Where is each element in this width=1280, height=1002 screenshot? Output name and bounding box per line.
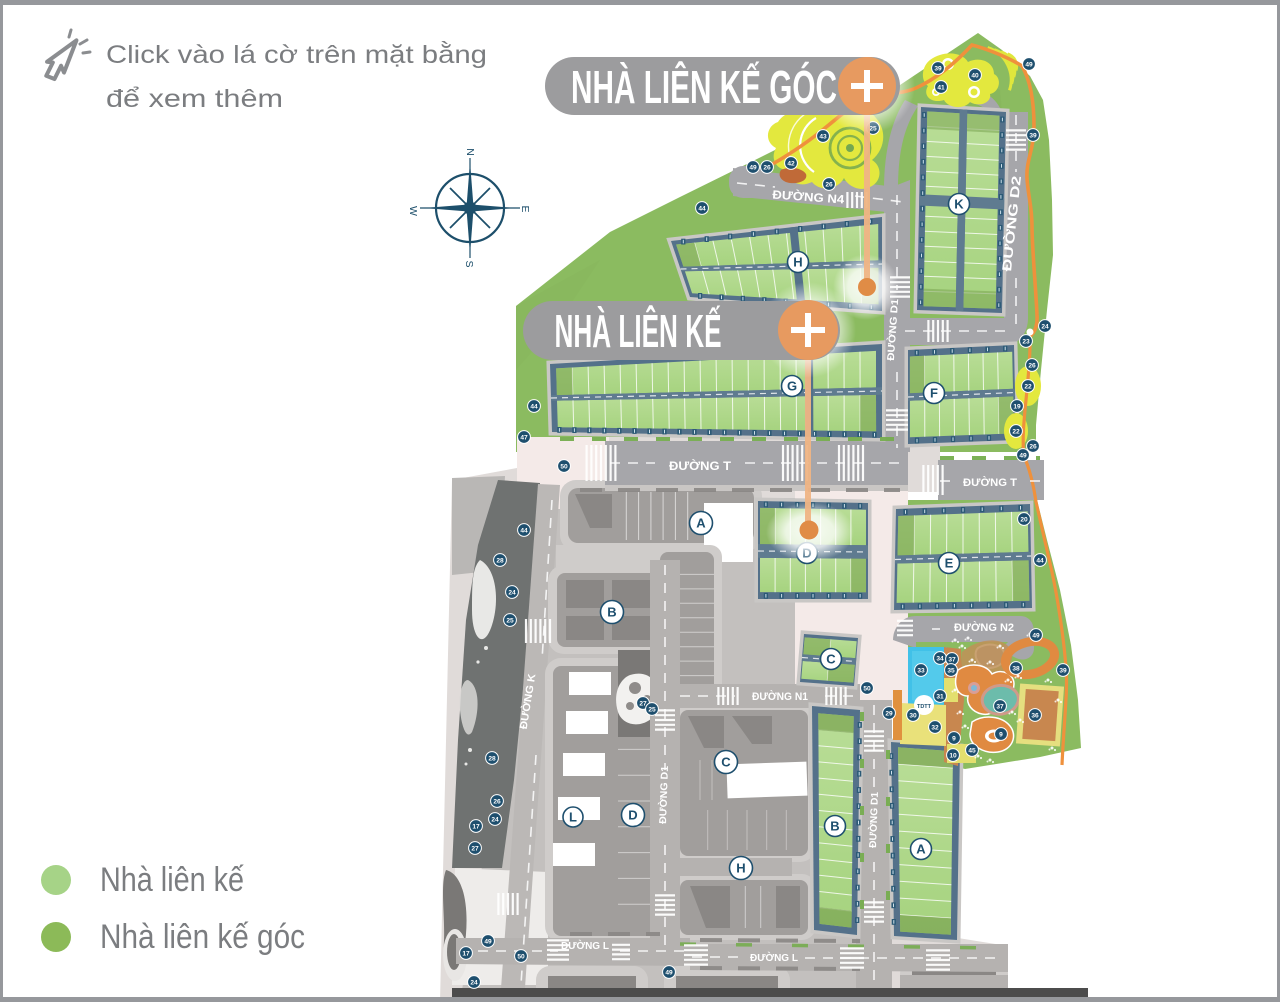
svg-text:F: F bbox=[930, 386, 938, 401]
svg-text:K: K bbox=[954, 197, 964, 212]
svg-text:49: 49 bbox=[749, 164, 757, 171]
svg-text:A: A bbox=[916, 842, 926, 857]
svg-text:50: 50 bbox=[560, 463, 568, 470]
svg-text:L: L bbox=[569, 810, 577, 825]
svg-text:9: 9 bbox=[999, 731, 1003, 738]
svg-text:Click vào lá cờ trên mặt bằng: Click vào lá cờ trên mặt bằng bbox=[106, 40, 487, 69]
svg-text:NHÀ LIÊN KẾ GÓC: NHÀ LIÊN KẾ GÓC bbox=[571, 61, 837, 113]
svg-text:B: B bbox=[830, 819, 839, 834]
svg-text:C: C bbox=[721, 755, 731, 770]
svg-text:ĐƯỜNG L: ĐƯỜNG L bbox=[561, 939, 610, 952]
svg-text:để xem thêm: để xem thêm bbox=[106, 85, 283, 113]
svg-text:C: C bbox=[826, 652, 836, 667]
svg-text:NHÀ LIÊN KẾ: NHÀ LIÊN KẾ bbox=[555, 305, 722, 357]
svg-text:Nhà liên kế góc: Nhà liên kế góc bbox=[100, 918, 305, 956]
svg-text:40: 40 bbox=[971, 72, 979, 79]
svg-text:E: E bbox=[945, 556, 954, 571]
svg-text:W: W bbox=[407, 206, 419, 216]
svg-text:33: 33 bbox=[917, 667, 925, 674]
svg-text:ĐƯỜNG T: ĐƯỜNG T bbox=[963, 476, 1017, 489]
svg-text:H: H bbox=[736, 861, 745, 876]
svg-text:H: H bbox=[793, 255, 802, 270]
svg-text:50: 50 bbox=[517, 953, 525, 960]
svg-text:TDTT: TDTT bbox=[917, 704, 932, 710]
svg-text:ĐƯỜNG N1: ĐƯỜNG N1 bbox=[752, 690, 808, 703]
svg-text:ĐƯỜNG T: ĐƯỜNG T bbox=[669, 460, 731, 473]
svg-text:24: 24 bbox=[470, 979, 478, 986]
svg-text:35: 35 bbox=[947, 667, 955, 674]
svg-text:19: 19 bbox=[1013, 403, 1021, 410]
svg-text:29: 29 bbox=[885, 710, 893, 717]
svg-text:22: 22 bbox=[1012, 428, 1020, 435]
svg-text:26: 26 bbox=[1028, 362, 1036, 369]
svg-text:39: 39 bbox=[1029, 132, 1037, 139]
svg-text:G: G bbox=[787, 379, 797, 394]
svg-text:23: 23 bbox=[1022, 338, 1030, 345]
svg-text:E: E bbox=[519, 205, 531, 212]
svg-text:Nhà liên kế: Nhà liên kế bbox=[100, 861, 244, 899]
svg-text:49: 49 bbox=[1019, 452, 1027, 459]
svg-text:9: 9 bbox=[952, 735, 956, 742]
svg-text:44: 44 bbox=[520, 527, 528, 534]
svg-text:31: 31 bbox=[936, 693, 944, 700]
svg-text:28: 28 bbox=[496, 557, 504, 564]
svg-text:30: 30 bbox=[909, 712, 917, 719]
svg-text:17: 17 bbox=[462, 950, 470, 957]
svg-text:50: 50 bbox=[863, 685, 871, 692]
svg-text:38: 38 bbox=[1012, 665, 1020, 672]
svg-text:28: 28 bbox=[488, 755, 496, 762]
svg-text:N: N bbox=[464, 148, 476, 156]
svg-text:22: 22 bbox=[1024, 383, 1032, 390]
svg-text:45: 45 bbox=[968, 747, 976, 754]
svg-text:49: 49 bbox=[665, 969, 673, 976]
svg-text:49: 49 bbox=[1025, 61, 1033, 68]
svg-text:27: 27 bbox=[471, 845, 479, 852]
svg-text:26: 26 bbox=[1029, 443, 1037, 450]
svg-text:43: 43 bbox=[819, 133, 827, 140]
svg-text:B: B bbox=[607, 605, 616, 620]
svg-text:24: 24 bbox=[508, 589, 516, 596]
svg-text:26: 26 bbox=[825, 181, 833, 188]
svg-text:24: 24 bbox=[491, 816, 499, 823]
svg-text:S: S bbox=[463, 260, 475, 267]
svg-text:ĐƯỜNG L: ĐƯỜNG L bbox=[750, 951, 799, 964]
svg-text:D: D bbox=[628, 808, 637, 823]
svg-text:39: 39 bbox=[1059, 667, 1067, 674]
svg-text:49: 49 bbox=[1032, 632, 1040, 639]
svg-text:44: 44 bbox=[698, 205, 706, 212]
svg-text:ĐƯỜNG N2: ĐƯỜNG N2 bbox=[954, 621, 1014, 634]
svg-text:A: A bbox=[696, 516, 706, 531]
svg-text:25: 25 bbox=[648, 706, 656, 713]
svg-text:42: 42 bbox=[787, 160, 795, 167]
svg-text:44: 44 bbox=[530, 403, 538, 410]
svg-text:36: 36 bbox=[1031, 712, 1039, 719]
svg-text:37: 37 bbox=[948, 656, 956, 663]
svg-text:26: 26 bbox=[763, 164, 771, 171]
svg-text:39: 39 bbox=[934, 65, 942, 72]
svg-text:49: 49 bbox=[484, 938, 492, 945]
svg-text:25: 25 bbox=[506, 617, 514, 624]
svg-text:10: 10 bbox=[949, 752, 957, 759]
svg-text:47: 47 bbox=[520, 434, 528, 441]
svg-text:24: 24 bbox=[1041, 323, 1049, 330]
svg-text:41: 41 bbox=[937, 84, 945, 91]
svg-text:44: 44 bbox=[1036, 557, 1044, 564]
svg-text:37: 37 bbox=[996, 703, 1004, 710]
svg-text:26: 26 bbox=[493, 798, 501, 805]
svg-text:32: 32 bbox=[931, 724, 939, 731]
svg-text:17: 17 bbox=[472, 823, 480, 830]
svg-text:34: 34 bbox=[936, 655, 944, 662]
svg-text:20: 20 bbox=[1020, 516, 1028, 523]
